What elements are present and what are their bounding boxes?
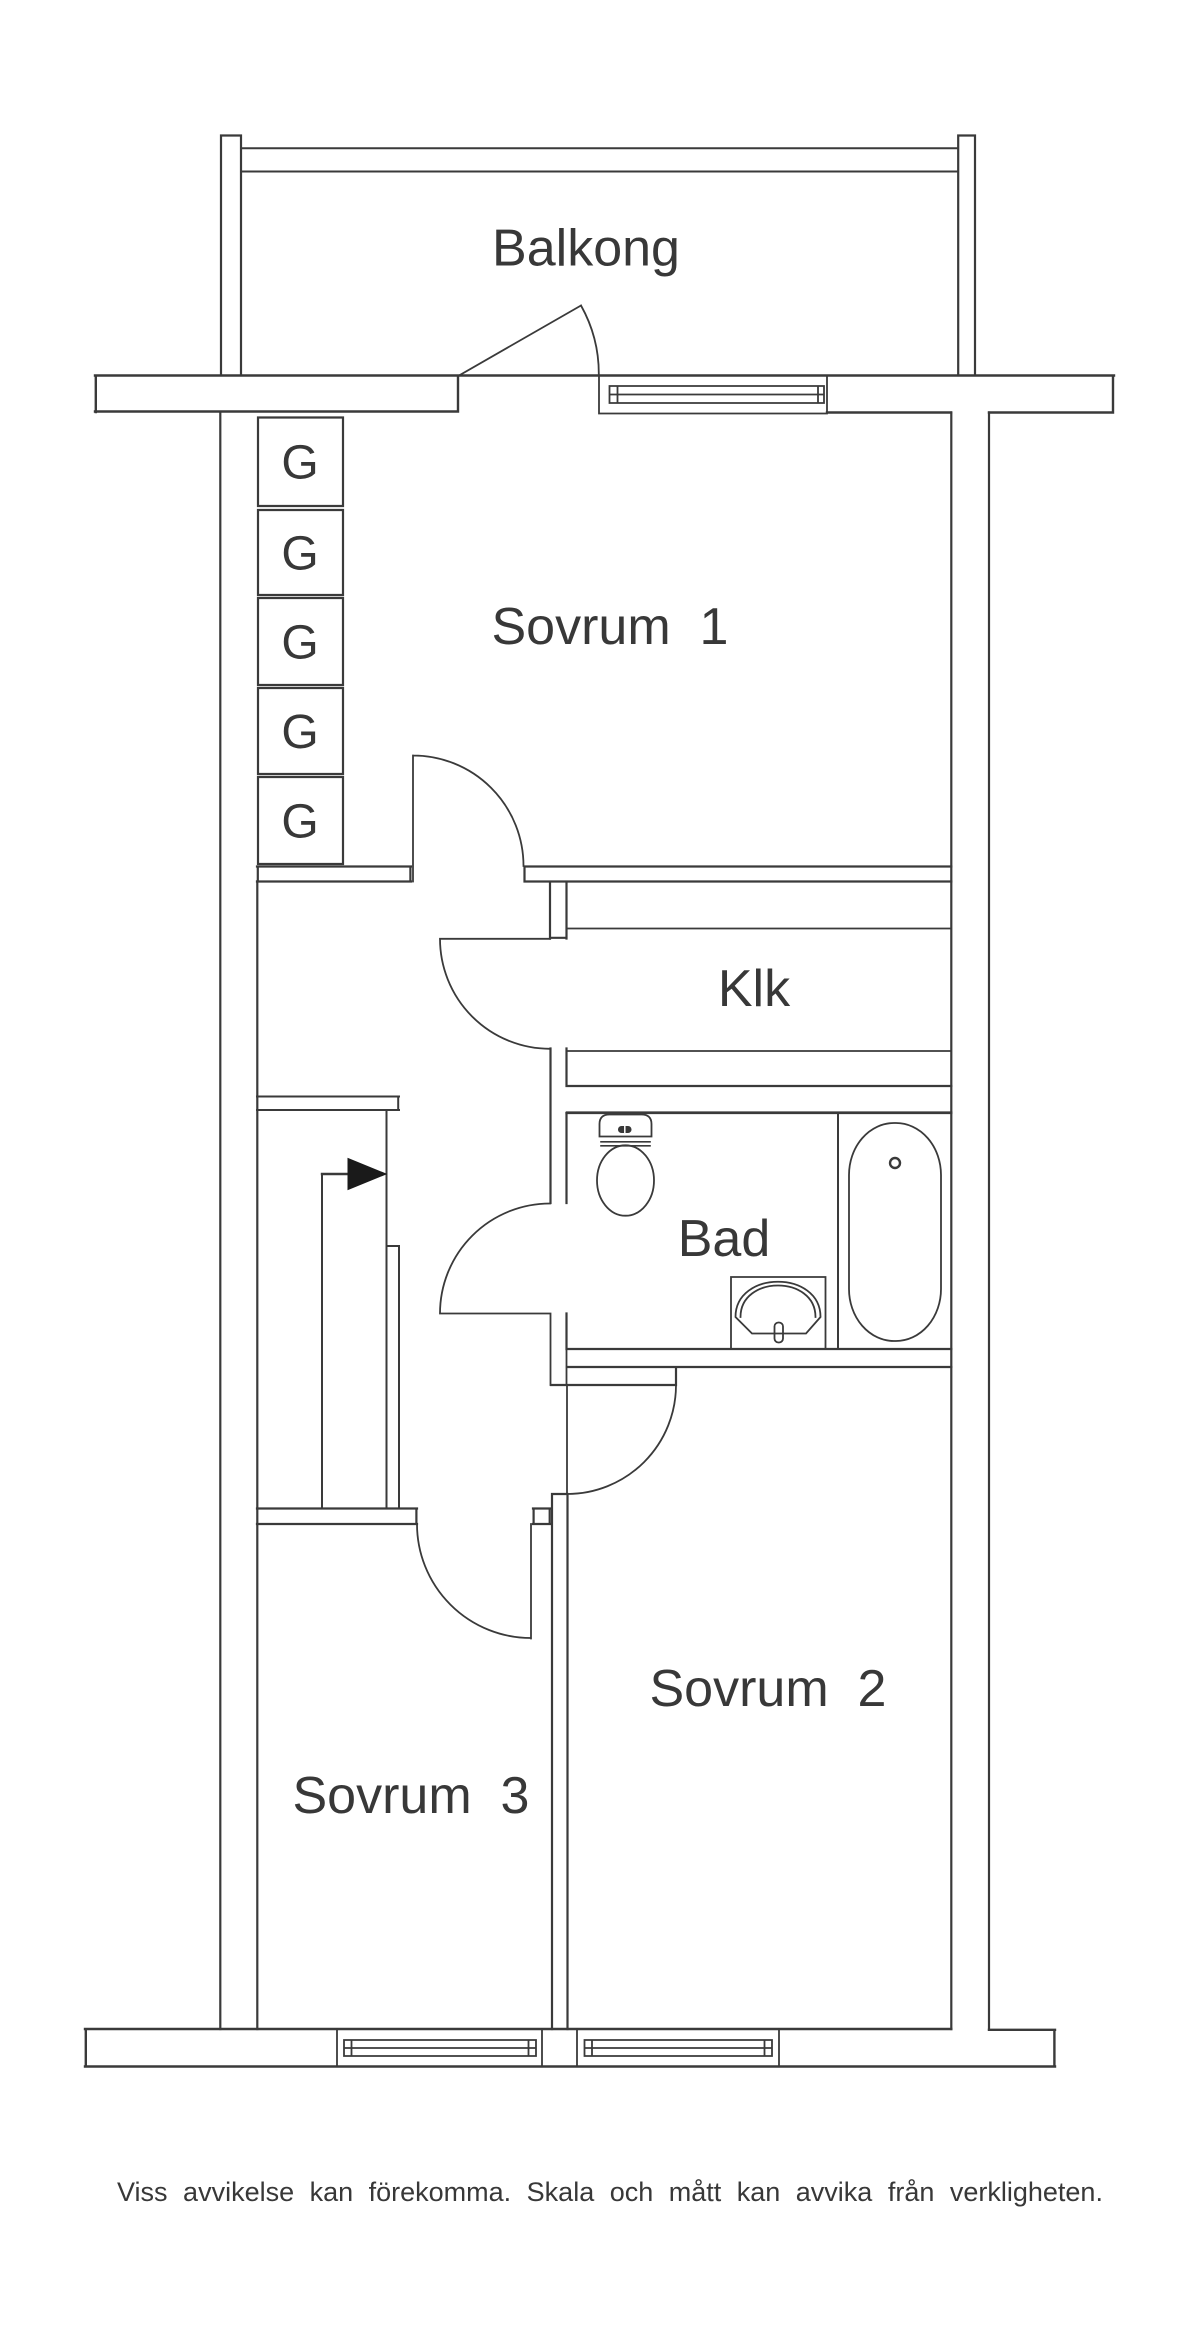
svg-text:G: G xyxy=(281,706,318,759)
svg-text:G: G xyxy=(281,437,318,490)
svg-text:Sovrum 3: Sovrum 3 xyxy=(293,1767,530,1825)
svg-text:Bad: Bad xyxy=(678,1210,771,1268)
svg-text:Sovrum 2: Sovrum 2 xyxy=(650,1660,887,1718)
svg-text:Balkong: Balkong xyxy=(492,220,680,278)
svg-text:Sovrum 1: Sovrum 1 xyxy=(492,598,729,656)
svg-text:G: G xyxy=(281,528,318,581)
svg-text:G: G xyxy=(281,617,318,670)
svg-text:Klk: Klk xyxy=(718,960,791,1018)
svg-text:Viss avvikelse kan förekomma.: Viss avvikelse kan förekomma. Skala och … xyxy=(117,2177,1103,2207)
svg-text:G: G xyxy=(281,796,318,849)
